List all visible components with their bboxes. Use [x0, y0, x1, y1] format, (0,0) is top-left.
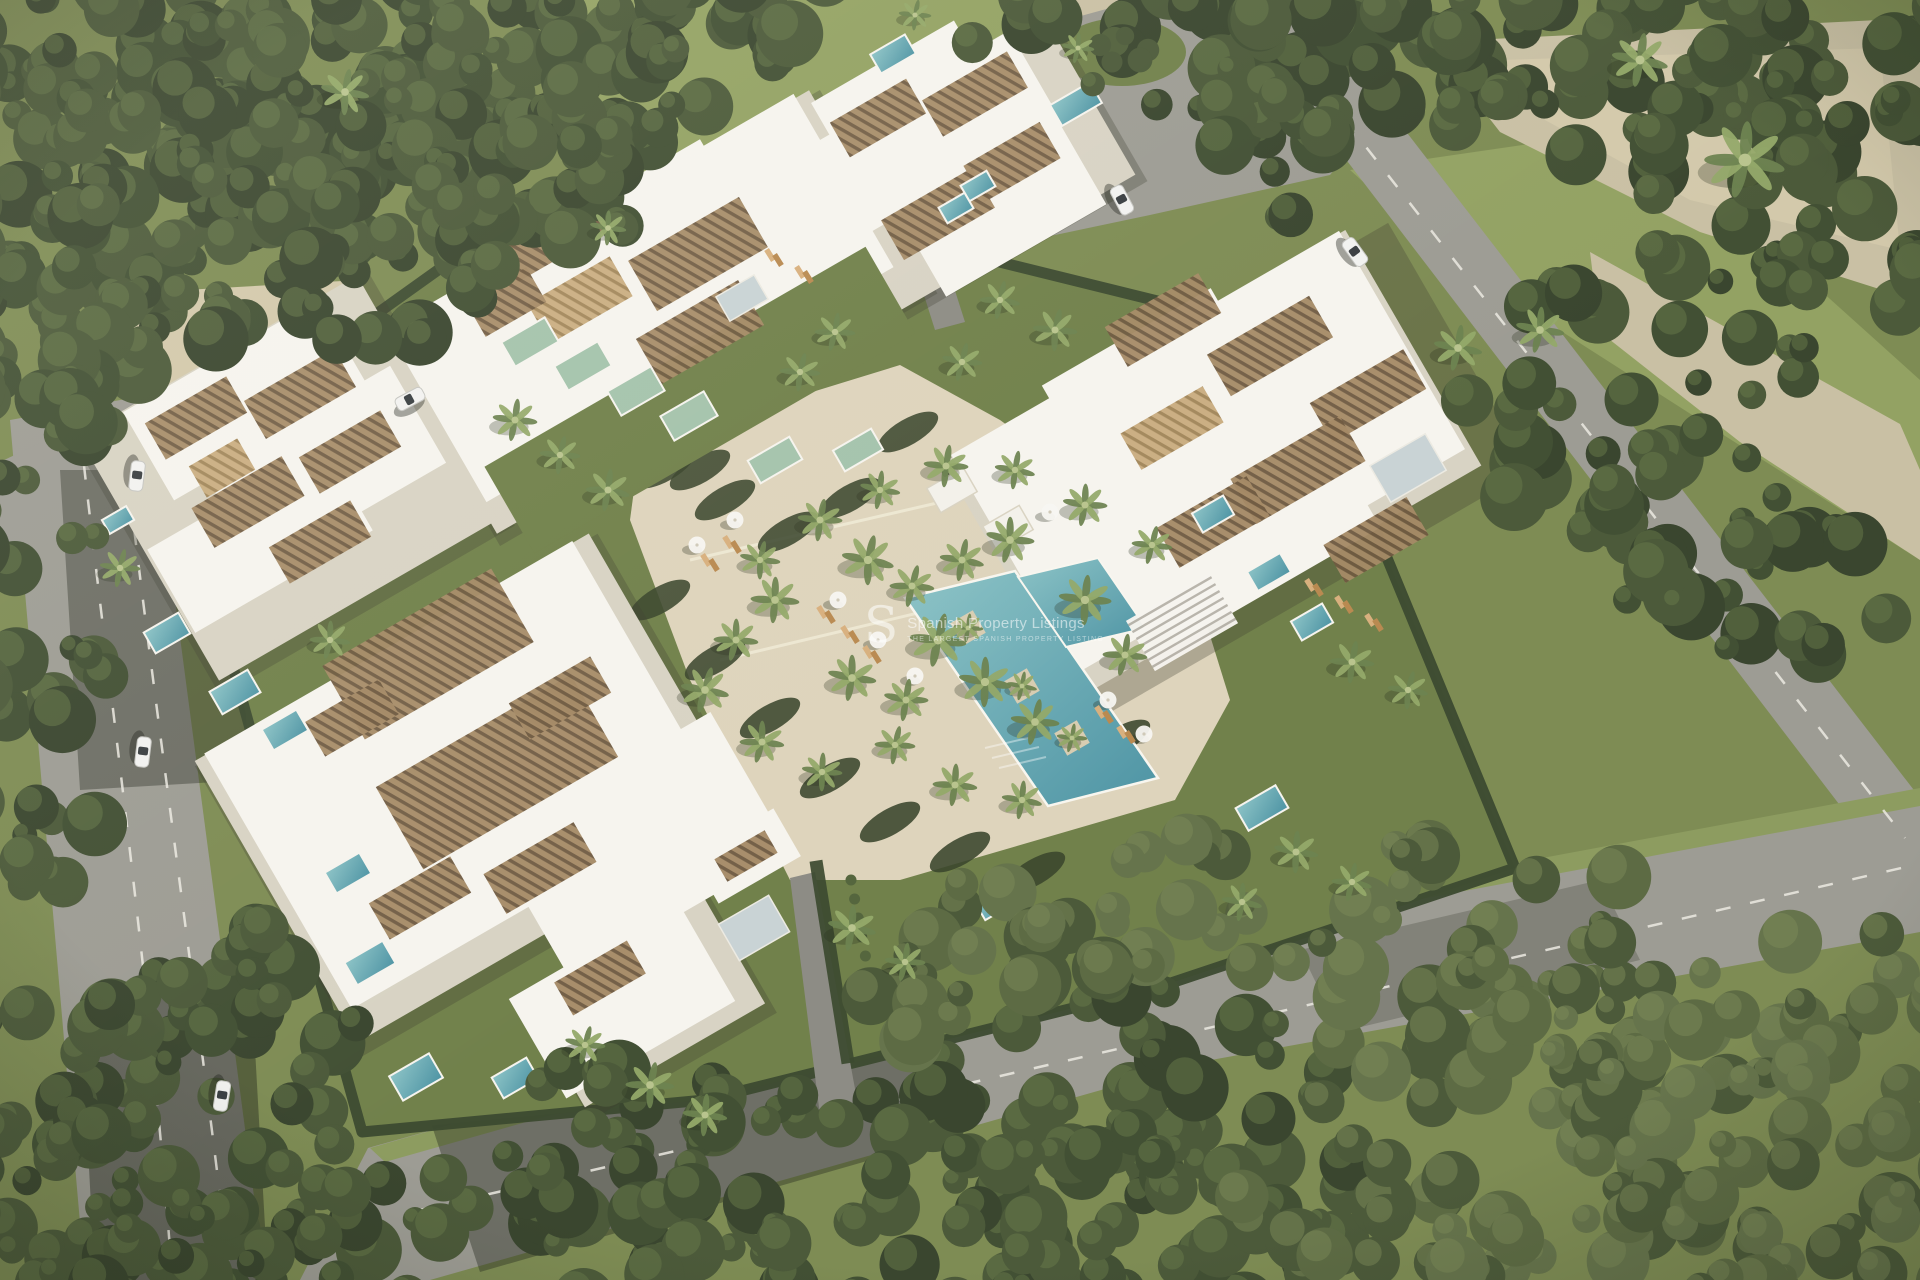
- lighting-overlay: [0, 0, 1920, 1280]
- render-scene: [0, 0, 1920, 1280]
- aerial-development-render: S Spanish Property Listings THE LARGEST …: [0, 0, 1920, 1280]
